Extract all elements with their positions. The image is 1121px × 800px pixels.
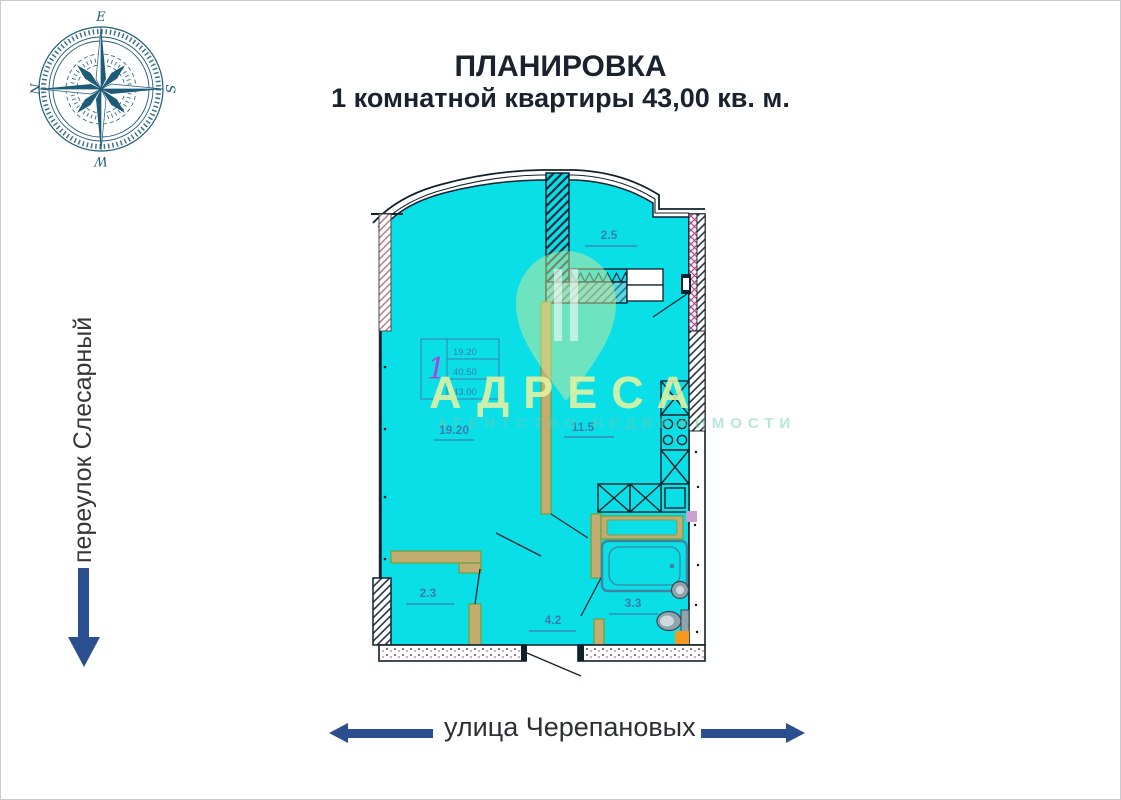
label-balcony: 2.5 xyxy=(601,228,618,242)
street-arrow-right-shaft xyxy=(701,729,787,738)
page: E S W N ПЛАНИРОВКА 1 комнатной квартиры … xyxy=(0,0,1121,800)
compass-letter-top: E xyxy=(95,10,106,25)
info-row-2: 40.50 xyxy=(453,367,477,378)
label-living: 19.20 xyxy=(439,423,469,437)
title-line2: 1 комнатной квартиры 43,00 кв. м. xyxy=(1,83,1120,114)
street-arrow-right-head xyxy=(786,723,805,743)
street-arrow-down-head xyxy=(68,637,100,667)
street-arrow-left-shaft xyxy=(347,729,433,738)
flat-number: 1 xyxy=(427,352,446,387)
street-arrow-down-shaft xyxy=(78,568,89,638)
floor-plan: 1 19.20 40.50 43.00 2.5 19.20 11.5 2.3 4… xyxy=(369,167,709,679)
title-line1: ПЛАНИРОВКА xyxy=(1,51,1120,83)
info-row-3: 43.00 xyxy=(453,387,477,398)
bottom-wall xyxy=(379,645,705,676)
street-label-left: переулок Слесарный xyxy=(69,317,98,563)
compass-letter-bottom: W xyxy=(93,153,108,168)
right-wall xyxy=(689,214,705,645)
label-hallway: 4.2 xyxy=(545,613,562,627)
label-closet: 2.3 xyxy=(420,586,437,600)
page-title: ПЛАНИРОВКА 1 комнатной квартиры 43,00 кв… xyxy=(1,51,1120,114)
label-bathroom: 3.3 xyxy=(625,596,642,610)
info-row-1: 19.20 xyxy=(453,347,477,358)
toilet-tank xyxy=(681,610,689,632)
street-label-bottom: улица Черепановых xyxy=(444,712,696,743)
entrance-door-line xyxy=(527,653,581,676)
label-kitchen: 11.5 xyxy=(572,420,595,434)
orange-marker xyxy=(675,631,689,644)
street-arrow-left-head xyxy=(329,723,348,743)
